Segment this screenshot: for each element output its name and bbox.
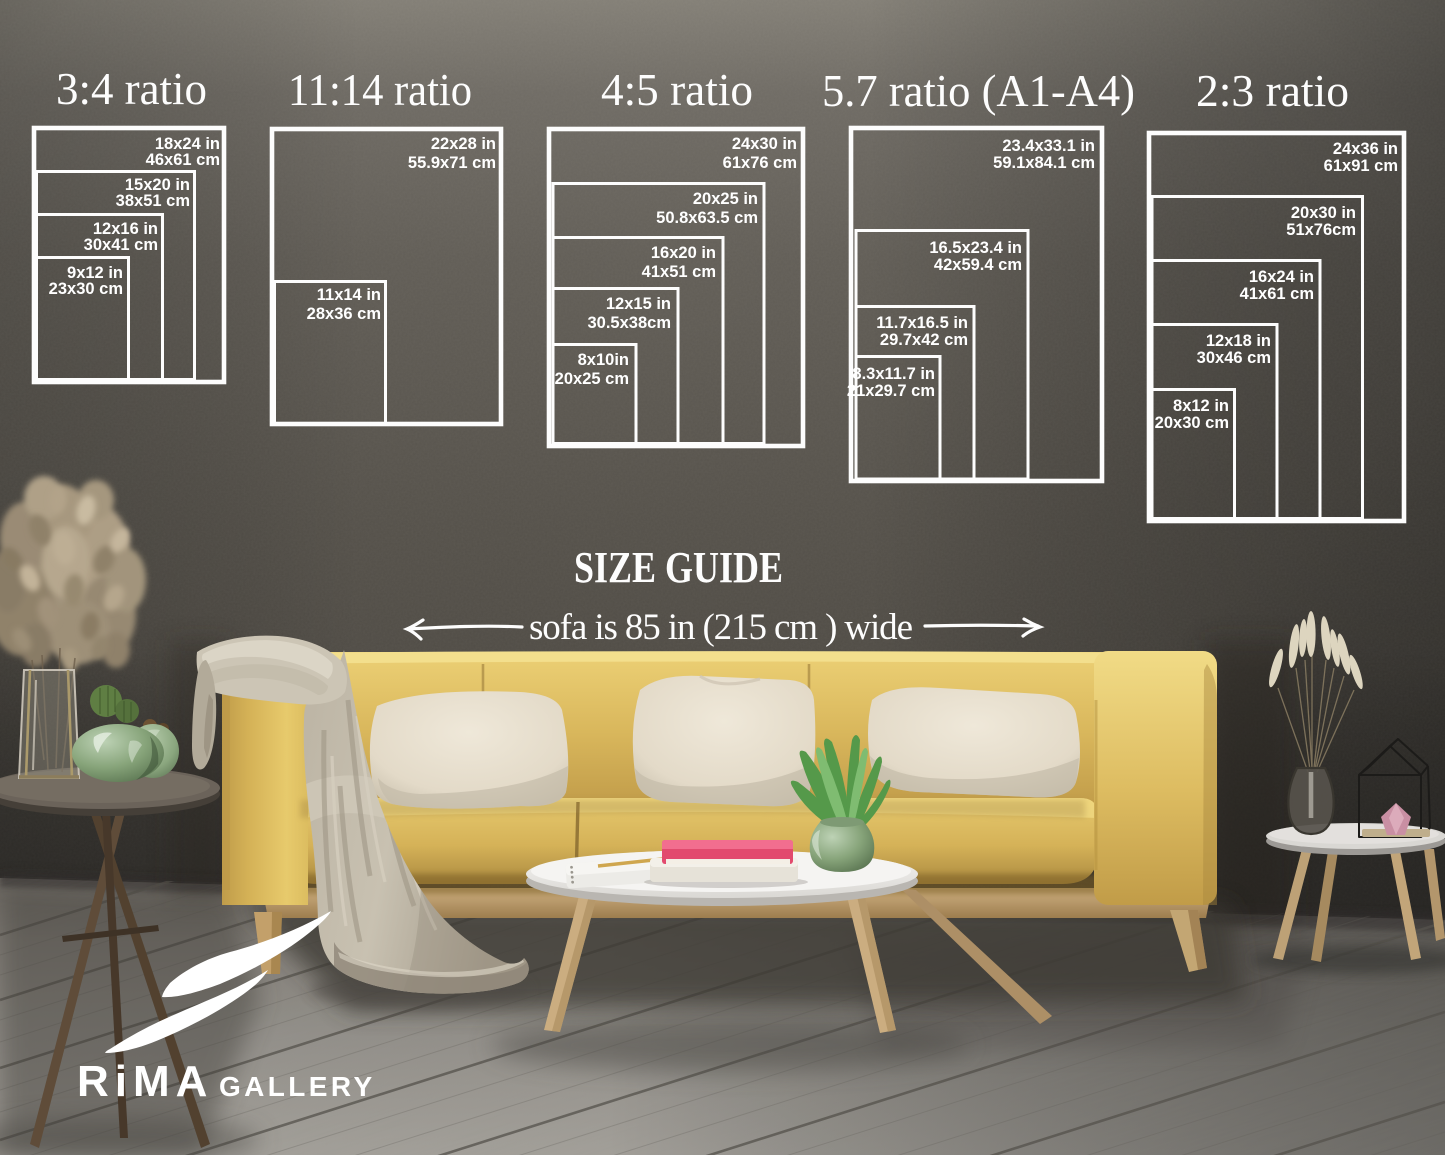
svg-text:GALLERY: GALLERY xyxy=(219,1071,376,1102)
svg-text:RiMA: RiMA xyxy=(77,1057,213,1106)
svg-text:5.7 ratio (A1-A4): 5.7 ratio (A1-A4) xyxy=(822,65,1135,116)
svg-text:20x25 cm: 20x25 cm xyxy=(555,370,629,388)
svg-text:sofa is 85 in (215 cm ) wide: sofa is 85 in (215 cm ) wide xyxy=(529,607,913,648)
svg-text:8x10in: 8x10in xyxy=(578,351,629,369)
svg-text:21x29.7 cm: 21x29.7 cm xyxy=(847,382,935,400)
svg-text:24x30 in: 24x30 in xyxy=(732,135,797,153)
svg-text:24x36 in: 24x36 in xyxy=(1333,140,1398,158)
svg-text:12x15 in: 12x15 in xyxy=(606,295,671,313)
svg-text:41x51 cm: 41x51 cm xyxy=(642,263,716,281)
svg-text:29.7x42 cm: 29.7x42 cm xyxy=(880,331,968,349)
svg-text:16.5x23.4 in: 16.5x23.4 in xyxy=(929,239,1022,257)
svg-text:55.9x71 cm: 55.9x71 cm xyxy=(408,154,496,172)
svg-text:41x61 cm: 41x61 cm xyxy=(1240,285,1314,303)
svg-text:20x30 cm: 20x30 cm xyxy=(1155,414,1229,432)
svg-text:16x20 in: 16x20 in xyxy=(651,244,716,262)
svg-text:30x41 cm: 30x41 cm xyxy=(84,236,158,254)
svg-text:23x30 cm: 23x30 cm xyxy=(49,280,123,298)
svg-text:8.3x11.7 in: 8.3x11.7 in xyxy=(852,365,935,383)
svg-text:12x18 in: 12x18 in xyxy=(1206,332,1271,350)
svg-text:11x14 in: 11x14 in xyxy=(317,286,381,304)
svg-text:30x46 cm: 30x46 cm xyxy=(1197,349,1271,367)
svg-text:46x61 cm: 46x61 cm xyxy=(146,151,220,169)
svg-text:8x12 in: 8x12 in xyxy=(1173,397,1229,415)
svg-text:16x24 in: 16x24 in xyxy=(1249,268,1314,286)
svg-text:61x91 cm: 61x91 cm xyxy=(1324,157,1398,175)
svg-text:11:14 ratio: 11:14 ratio xyxy=(288,64,472,115)
svg-text:61x76 cm: 61x76 cm xyxy=(723,154,797,172)
svg-text:20x25 in: 20x25 in xyxy=(693,190,758,208)
svg-text:38x51 cm: 38x51 cm xyxy=(116,192,190,210)
svg-text:51x76cm: 51x76cm xyxy=(1286,221,1356,239)
svg-text:2:3 ratio: 2:3 ratio xyxy=(1196,65,1349,116)
svg-text:30.5x38cm: 30.5x38cm xyxy=(588,314,672,332)
svg-text:22x28 in: 22x28 in xyxy=(431,135,496,153)
svg-text:SIZE GUIDE: SIZE GUIDE xyxy=(574,543,783,592)
svg-text:11.7x16.5 in: 11.7x16.5 in xyxy=(876,314,968,332)
svg-text:50.8x63.5 cm: 50.8x63.5 cm xyxy=(656,209,758,227)
svg-text:28x36 cm: 28x36 cm xyxy=(307,305,381,323)
svg-text:42x59.4 cm: 42x59.4 cm xyxy=(934,256,1022,274)
svg-text:59.1x84.1 cm: 59.1x84.1 cm xyxy=(993,154,1095,172)
svg-text:4:5 ratio: 4:5 ratio xyxy=(601,64,753,115)
svg-text:23.4x33.1 in: 23.4x33.1 in xyxy=(1002,137,1095,155)
svg-text:3:4 ratio: 3:4 ratio xyxy=(56,63,207,114)
svg-text:20x30 in: 20x30 in xyxy=(1291,204,1356,222)
